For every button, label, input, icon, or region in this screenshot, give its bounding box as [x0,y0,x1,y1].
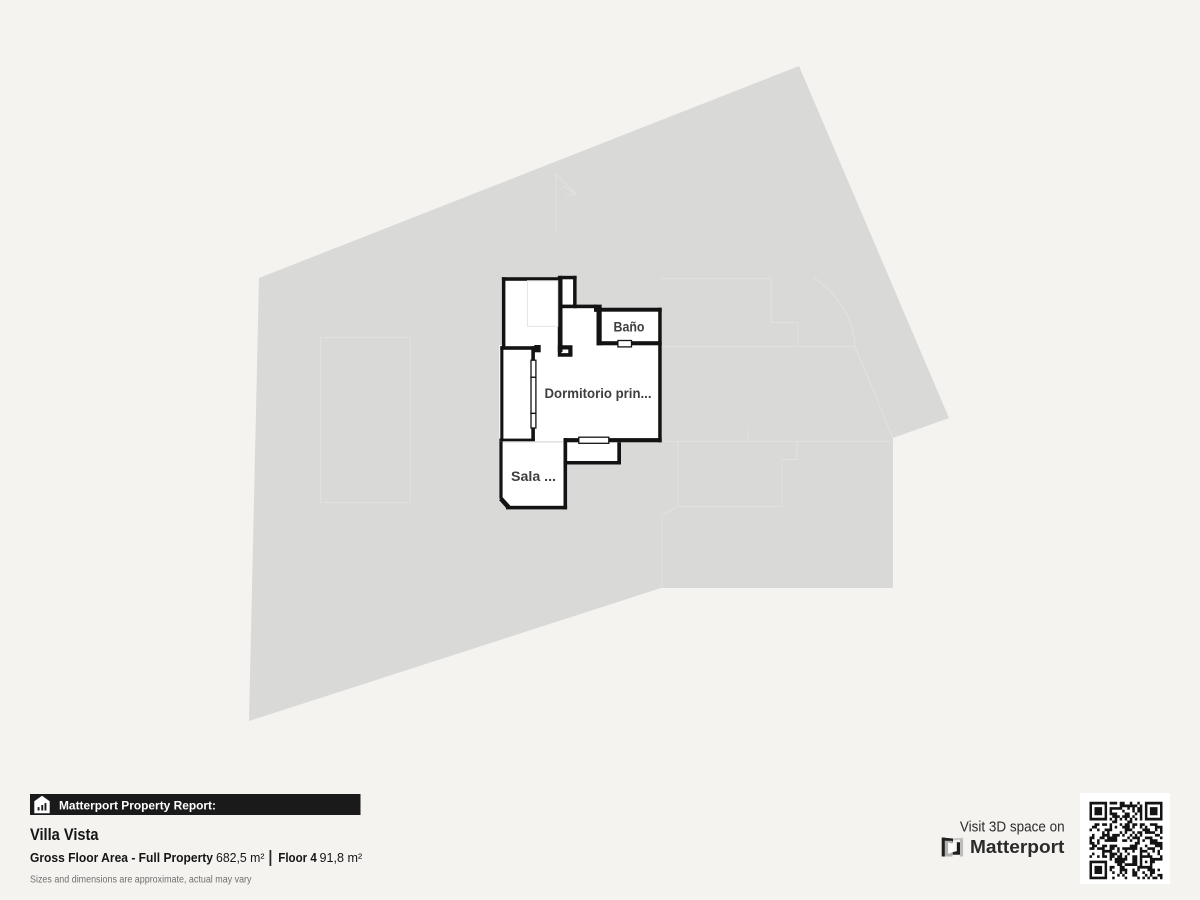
svg-text:Visit 3D space on: Visit 3D space on [960,818,1065,835]
svg-text:Matterport: Matterport [970,837,1064,857]
svg-text:Dormitorio prin...: Dormitorio prin... [545,386,652,401]
svg-text:682,5 m²: 682,5 m² [216,850,265,865]
svg-text:Sizes and dimensions are appro: Sizes and dimensions are approximate, ac… [30,874,252,885]
svg-text:91,8 m²: 91,8 m² [320,850,363,865]
svg-text:Floor 4: Floor 4 [278,850,317,865]
svg-text:Baño: Baño [614,320,645,335]
svg-text:Villa Vista: Villa Vista [30,825,99,844]
svg-text:Matterport Property Report:: Matterport Property Report: [59,798,216,812]
svg-text:Gross Floor Area - Full Proper: Gross Floor Area - Full Property [30,850,214,865]
svg-text:Sala ...: Sala ... [511,469,556,484]
